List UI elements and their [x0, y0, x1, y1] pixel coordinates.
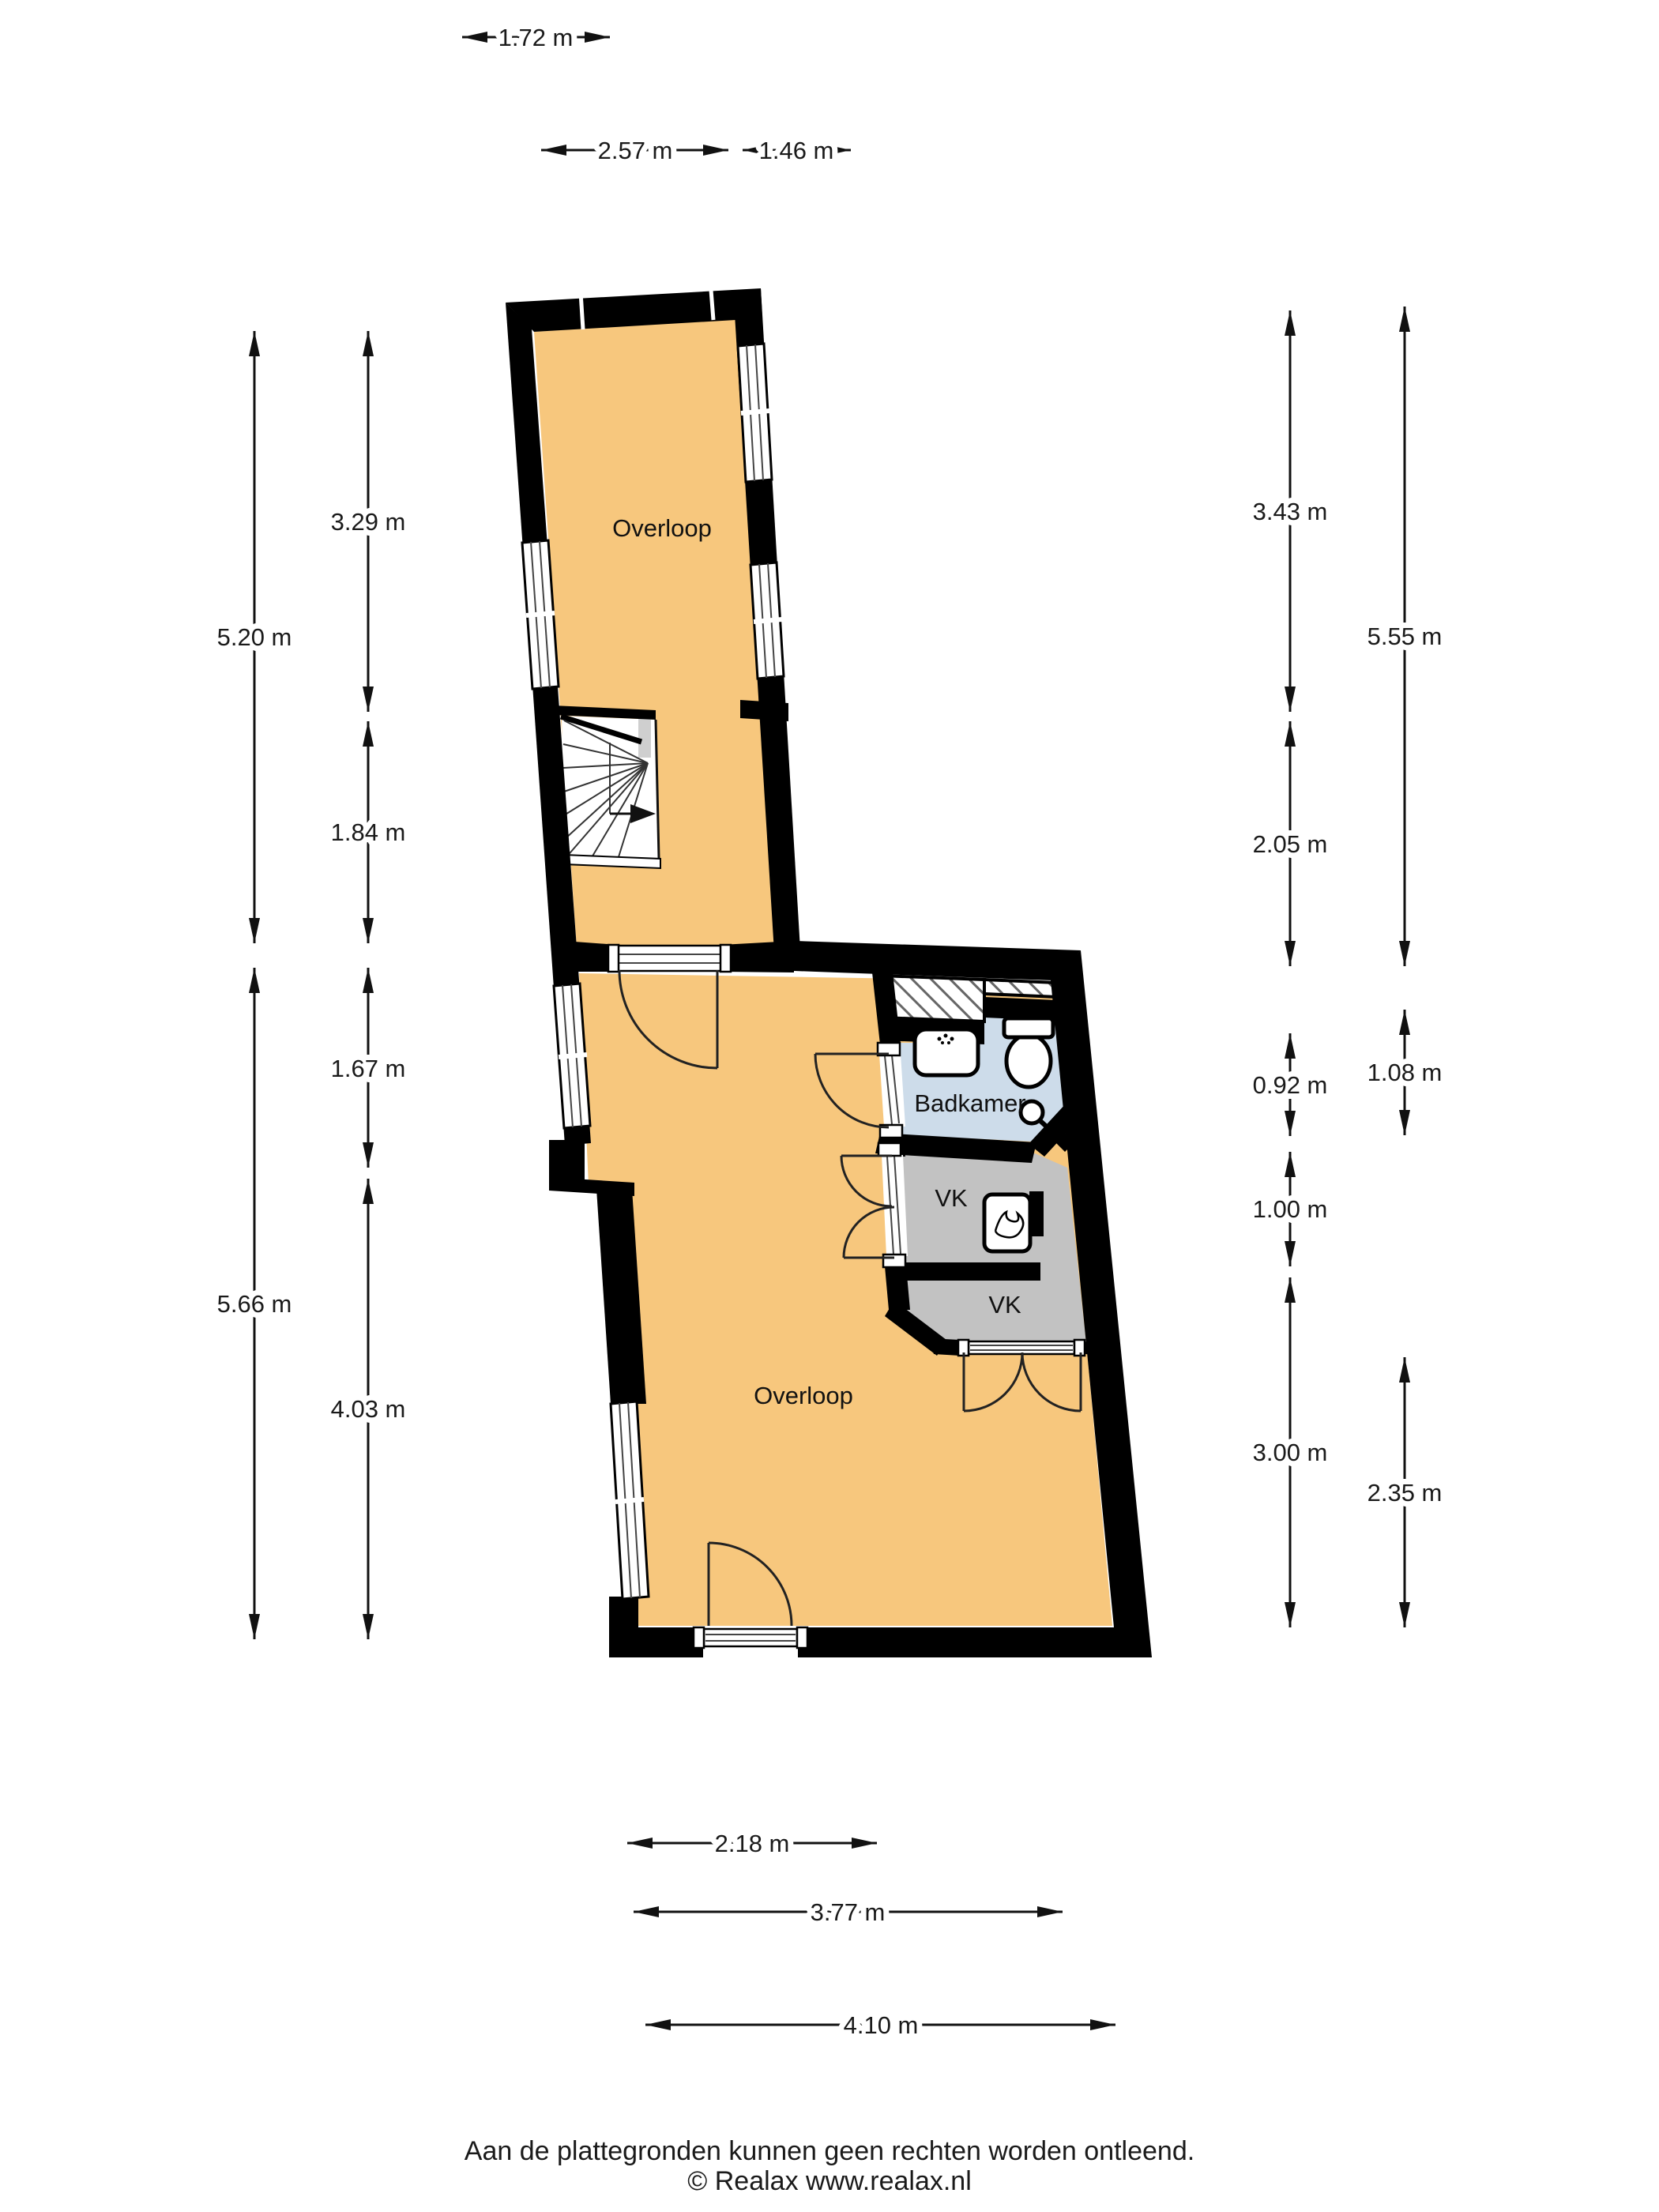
dimension-label-167: 1.67 m — [331, 1055, 406, 1082]
wall-top-lower-section — [794, 941, 1081, 980]
dimension-label-092: 0.92 m — [1253, 1071, 1328, 1099]
threshold-bottom-door — [694, 1627, 807, 1648]
dimension-343: 3.43 m — [1253, 310, 1328, 712]
floorplan-page: Overloop Overloop Badkamer VK VK 1.72 m … — [0, 0, 1659, 2212]
dimension-205: 2.05 m — [1253, 721, 1328, 966]
dimension-235: 2.35 m — [1367, 1357, 1443, 1627]
dimension-108: 1.08 m — [1367, 1010, 1443, 1135]
room-label-badkamer: Badkamer — [914, 1089, 1025, 1117]
dimension-label-205: 2.05 m — [1253, 830, 1328, 858]
dimension-label-108: 1.08 m — [1367, 1059, 1443, 1086]
floorplan-drawing: Overloop Overloop Badkamer VK VK 1.72 m … — [0, 0, 1659, 2212]
wall-vk-divider — [891, 1262, 1040, 1281]
dimension-label-184: 1.84 m — [331, 818, 406, 846]
dimension-label-218: 2.18 m — [715, 1830, 790, 1857]
dimension-label-403: 4.03 m — [331, 1395, 406, 1423]
wall-junction-mid — [721, 941, 794, 972]
dimension-566: 5.66 m — [217, 968, 292, 1639]
wall-bottom-right — [798, 1627, 1152, 1657]
threshold-junction — [608, 945, 731, 972]
wall-stub-right — [740, 700, 788, 721]
dimension-218: 2.18 m — [627, 1830, 877, 1857]
dimension-label-100: 1.00 m — [1253, 1195, 1328, 1223]
dimension-167: 1.67 m — [331, 968, 406, 1168]
wall-joint-tick — [711, 290, 713, 320]
dimension-label-555: 5.55 m — [1367, 623, 1443, 650]
window-right-2 — [750, 562, 784, 679]
toilet-icon — [1004, 1018, 1053, 1087]
dimension-403: 4.03 m — [331, 1179, 406, 1639]
dimension-300: 3.00 m — [1253, 1277, 1328, 1627]
room-label-vk-upper: VK — [935, 1184, 968, 1212]
dimension-100: 1.00 m — [1253, 1152, 1328, 1266]
dimension-377: 3.77 m — [634, 1898, 1063, 1926]
wall-vk-bottom-right — [1083, 1341, 1114, 1356]
dimension-146: 1.46 m — [743, 137, 851, 164]
wall-vk-bottom-left — [929, 1338, 960, 1356]
dimension-label-172: 1.72 m — [498, 24, 574, 51]
dimension-label-235: 2.35 m — [1367, 1479, 1443, 1507]
room-label-overloop-main: Overloop — [754, 1382, 853, 1409]
dimension-label-566: 5.66 m — [217, 1290, 292, 1318]
room-label-vk-lower: VK — [988, 1291, 1021, 1319]
dimension-label-257: 2.57 m — [598, 137, 673, 164]
dimension-184: 1.84 m — [331, 721, 406, 943]
dimension-label-520: 5.20 m — [217, 623, 292, 651]
dimension-410: 4.10 m — [645, 2011, 1115, 2039]
wall-joint-tick — [581, 292, 583, 329]
dimension-329: 3.29 m — [331, 331, 406, 712]
footer-copyright: © Realax www.realax.nl — [687, 2166, 972, 2196]
dimension-092: 0.92 m — [1253, 1033, 1328, 1136]
dimension-label-377: 3.77 m — [811, 1898, 886, 1926]
dimension-257: 2.57 m — [541, 137, 728, 164]
dimension-label-343: 3.43 m — [1253, 498, 1328, 525]
dimension-label-300: 3.00 m — [1253, 1439, 1328, 1466]
stair-landing-strip — [638, 718, 651, 758]
sink-icon — [915, 1029, 978, 1075]
staircase — [561, 716, 660, 868]
room-label-overloop-top: Overloop — [612, 514, 712, 542]
wall-corner-bottom-left — [609, 1597, 638, 1657]
footer: Aan de plattegronden kunnen geen rechten… — [465, 2136, 1194, 2196]
boiler-icon — [984, 1194, 1030, 1251]
dimension-label-410: 4.10 m — [844, 2011, 919, 2039]
dimension-520: 5.20 m — [217, 331, 292, 943]
dimension-label-146: 1.46 m — [759, 137, 834, 164]
dimension-555: 5.55 m — [1367, 307, 1443, 966]
dimension-label-329: 3.29 m — [331, 508, 406, 536]
dimension-172: 1.72 m — [462, 24, 610, 51]
hatch-right — [984, 980, 1057, 997]
footer-disclaimer: Aan de plattegronden kunnen geen rechten… — [465, 2136, 1194, 2166]
